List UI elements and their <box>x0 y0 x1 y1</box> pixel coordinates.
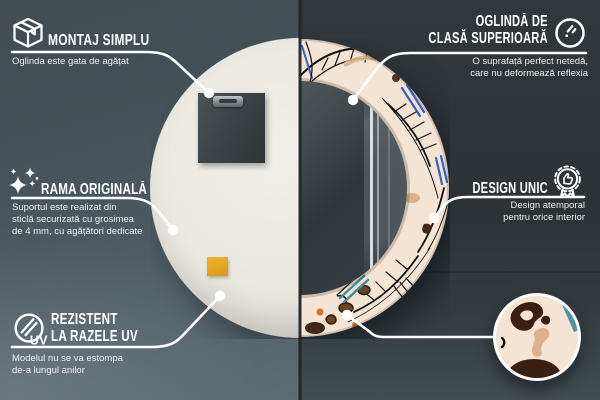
subtitle-line: sticlă securizată cu grosimea <box>12 214 142 226</box>
split-divider-line <box>298 0 302 400</box>
subtitle-line: Design atemporal <box>503 200 585 212</box>
sparkles-icon <box>6 164 42 205</box>
mirror-front-view <box>300 38 450 339</box>
subtitle-line: pentru orice interior <box>503 212 585 224</box>
callout-sub-uv: Modelul nu se va estompa de-a lungul ani… <box>12 353 123 377</box>
subtitle-line: Oglinda este gata de agățat <box>12 56 129 68</box>
callout-sub-design: Design atemporal pentru orice interior <box>503 200 585 224</box>
callout-title-rama: RAMA ORIGINALĂ <box>41 181 147 198</box>
uv-lens-icon: UV <box>12 311 49 353</box>
mirror-back-panel <box>150 38 300 338</box>
hanger-bracket <box>213 96 243 107</box>
subtitle-line: de 4 mm, cu agățători dedicate <box>12 226 142 238</box>
title-line: CLASĂ SUPERIOARĂ <box>429 30 548 47</box>
round-mirror-icon <box>552 15 588 56</box>
subtitle-line: de-a lungul anilor <box>12 365 123 377</box>
pattern-closeup-art <box>496 296 578 378</box>
title-line: RAMA ORIGINALĂ <box>41 181 147 198</box>
package-box-icon <box>10 15 46 56</box>
callout-sub-oglinda: O suprafață perfect netedă, care nu defo… <box>470 56 588 80</box>
callout-title-design: DESIGN UNIC <box>472 180 548 197</box>
subtitle-line: O suprafață perfect netedă, <box>470 56 588 68</box>
subtitle-line: care nu deformează reflexia <box>470 68 588 80</box>
callout-title-uv: REZISTENT LA RAZELE UV <box>51 312 138 345</box>
title-line: MONTAJ SIMPLU <box>48 32 149 49</box>
mirror-back-view <box>150 38 300 339</box>
award-badge-icon <box>550 165 585 205</box>
callout-title-montaj: MONTAJ SIMPLU <box>48 32 149 49</box>
callout-sub-montaj: Oglinda este gata de agățat <box>12 56 129 68</box>
title-line: LA RAZELE UV <box>51 329 138 346</box>
mounting-plate <box>198 93 265 163</box>
title-line: REZISTENT <box>51 312 138 329</box>
label-sticker <box>207 257 228 276</box>
decorative-frame-and-glass <box>300 38 450 338</box>
product-infographic: MONTAJ SIMPLU Oglinda este gata de agăța… <box>0 0 600 400</box>
subtitle-line: Modelul nu se va estompa <box>12 353 123 365</box>
pattern-closeup-circle <box>493 293 581 381</box>
subtitle-line: Suportul este realizat din <box>12 202 142 214</box>
uv-icon-label: UV <box>30 332 48 347</box>
callout-sub-rama: Suportul este realizat din sticlă securi… <box>12 202 142 238</box>
title-line: OGLINDĂ DE <box>429 13 548 30</box>
callout-title-oglinda: OGLINDĂ DE CLASĂ SUPERIOARĂ <box>429 13 548 47</box>
title-line: DESIGN UNIC <box>472 180 548 197</box>
